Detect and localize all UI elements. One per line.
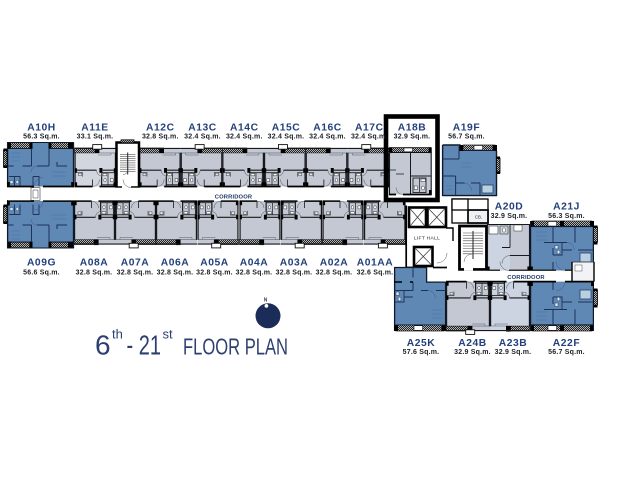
svg-text:33.1 Sq.m.: 33.1 Sq.m.	[77, 134, 114, 141]
svg-text:CORRIDOOR: CORRIDOOR	[215, 195, 253, 201]
svg-text:A15C: A15C	[272, 123, 301, 134]
svg-text:57.6 Sq.m.: 57.6 Sq.m.	[403, 349, 440, 356]
svg-text:A17C: A17C	[355, 123, 384, 134]
svg-text:A12C: A12C	[146, 123, 175, 134]
svg-text:A23B: A23B	[499, 338, 528, 349]
svg-text:6: 6	[95, 330, 111, 361]
svg-text:56.7 Sq.m.: 56.7 Sq.m.	[548, 349, 585, 356]
svg-text:56.6 Sq.m.: 56.6 Sq.m.	[23, 270, 60, 277]
svg-text:32.8 Sq.m.: 32.8 Sq.m.	[236, 270, 273, 277]
svg-text:56.3 Sq.m.: 56.3 Sq.m.	[23, 134, 60, 141]
svg-text:LIFT HALL: LIFT HALL	[414, 236, 440, 242]
svg-text:N: N	[264, 298, 268, 304]
svg-text:A13C: A13C	[188, 123, 217, 134]
svg-text:32.9 Sq.m.: 32.9 Sq.m.	[454, 349, 491, 356]
svg-text:FLOOR PLAN: FLOOR PLAN	[183, 334, 288, 360]
svg-text:32.8 Sq.m.: 32.8 Sq.m.	[117, 270, 154, 277]
svg-text:A03A: A03A	[280, 258, 309, 269]
svg-text:32.8 Sq.m.: 32.8 Sq.m.	[76, 270, 113, 277]
svg-text:A04A: A04A	[240, 258, 269, 269]
svg-text:A09G: A09G	[27, 258, 56, 269]
svg-text:A25K: A25K	[407, 338, 436, 349]
svg-text:CB.: CB.	[475, 215, 482, 220]
svg-text:- 21: - 21	[127, 330, 162, 361]
svg-text:A24B: A24B	[458, 338, 487, 349]
svg-text:A08A: A08A	[80, 258, 109, 269]
svg-text:A22F: A22F	[553, 338, 580, 349]
svg-text:th: th	[112, 327, 123, 342]
svg-text:32.4 Sq.m.: 32.4 Sq.m.	[184, 134, 221, 141]
svg-text:32.8 Sq.m.: 32.8 Sq.m.	[276, 270, 313, 277]
svg-text:A02A: A02A	[320, 258, 349, 269]
svg-text:56.7 Sq.m.: 56.7 Sq.m.	[448, 134, 485, 141]
svg-text:32.8 Sq.m.: 32.8 Sq.m.	[157, 270, 194, 277]
svg-text:A05A: A05A	[200, 258, 229, 269]
svg-text:32.9 Sq.m.: 32.9 Sq.m.	[495, 349, 532, 356]
svg-text:A16C: A16C	[313, 123, 342, 134]
svg-text:A11E: A11E	[81, 123, 108, 134]
svg-text:CORRIDOOR: CORRIDOOR	[507, 275, 545, 281]
svg-text:32.8 Sq.m.: 32.8 Sq.m.	[196, 270, 233, 277]
svg-text:32.9 Sq.m.: 32.9 Sq.m.	[394, 134, 431, 141]
svg-text:32.4 Sq.m.: 32.4 Sq.m.	[351, 134, 388, 141]
svg-text:A07A: A07A	[121, 258, 150, 269]
svg-text:32.4 Sq.m.: 32.4 Sq.m.	[226, 134, 263, 141]
svg-text:32.4 Sq.m.: 32.4 Sq.m.	[309, 134, 346, 141]
svg-text:A14C: A14C	[230, 123, 259, 134]
svg-text:st: st	[163, 327, 174, 342]
svg-text:A21J: A21J	[553, 202, 580, 213]
svg-text:A20D: A20D	[495, 202, 524, 213]
svg-text:32.9 Sq.m.: 32.9 Sq.m.	[491, 213, 528, 220]
svg-text:32.6 Sq.m.: 32.6 Sq.m.	[357, 270, 394, 277]
svg-text:A10H: A10H	[27, 123, 56, 134]
svg-text:32.8 Sq.m.: 32.8 Sq.m.	[142, 134, 179, 141]
svg-text:A06A: A06A	[161, 258, 190, 269]
svg-text:A01AA: A01AA	[357, 258, 394, 269]
svg-text:A19F: A19F	[453, 123, 480, 134]
svg-text:A18B: A18B	[398, 123, 427, 134]
svg-text:32.8 Sq.m.: 32.8 Sq.m.	[316, 270, 353, 277]
svg-text:32.4 Sq.m.: 32.4 Sq.m.	[268, 134, 305, 141]
svg-text:56.3 Sq.m.: 56.3 Sq.m.	[548, 213, 585, 220]
